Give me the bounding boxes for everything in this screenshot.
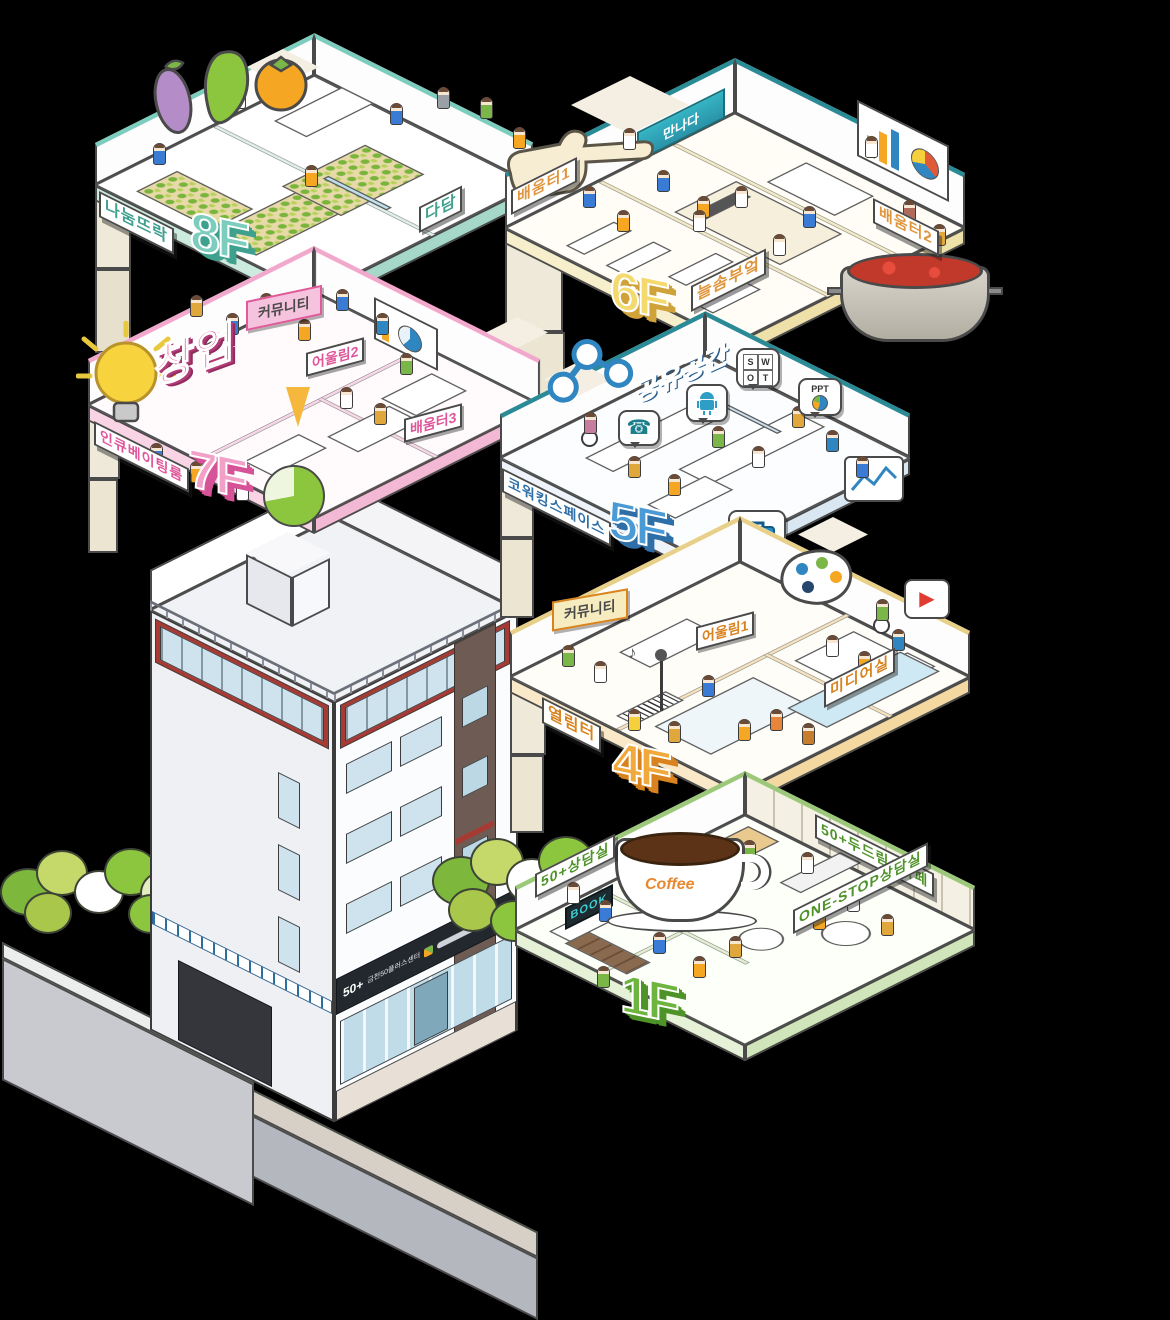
person xyxy=(729,936,742,958)
person xyxy=(480,97,493,119)
elevator-door xyxy=(500,538,534,618)
palette-icon xyxy=(778,547,856,607)
building-window xyxy=(346,881,392,934)
floor-number-5f: 5F xyxy=(608,492,665,558)
floor-7f: 커뮤니티 창업 인큐베이팅룸 어울림2 배움터3 7F xyxy=(88,405,120,553)
person xyxy=(826,430,839,452)
person xyxy=(336,289,349,311)
person xyxy=(628,456,641,478)
soup-pot-icon xyxy=(840,266,990,342)
bush xyxy=(24,892,72,934)
person xyxy=(801,852,814,874)
community-banner-text: 커뮤니티 xyxy=(564,597,616,622)
play-button-icon: ▶ xyxy=(904,579,950,619)
person xyxy=(653,932,666,954)
person xyxy=(668,474,681,496)
chart-pie xyxy=(398,321,422,357)
floor-number-1f: 1F xyxy=(620,966,677,1032)
person xyxy=(803,206,816,228)
phone-icon: ☎ xyxy=(627,418,652,438)
person xyxy=(190,295,203,317)
pennant-icon xyxy=(286,387,310,427)
building-window xyxy=(400,716,442,767)
sign-logo: 50+ xyxy=(343,976,363,1000)
ppt-label: PPT xyxy=(811,384,829,394)
person xyxy=(583,186,596,208)
sign-logo-2-icon xyxy=(424,944,433,958)
parking-entrance xyxy=(178,960,272,1087)
pot-handle xyxy=(827,287,843,295)
pot-contents xyxy=(847,253,983,289)
community-banner-text: 커뮤니티 xyxy=(258,295,310,322)
person xyxy=(594,661,607,683)
person xyxy=(305,165,318,187)
person xyxy=(876,599,889,621)
person xyxy=(856,456,869,478)
android-bubble xyxy=(686,384,728,422)
person xyxy=(802,723,815,745)
person xyxy=(628,709,641,731)
floor-number-8f: 8F xyxy=(190,204,247,270)
phone-bubble: ☎ xyxy=(618,410,660,446)
building: 50+ 금천50플러스센터 xyxy=(150,490,520,1150)
ppt-bubble: PPT xyxy=(798,378,842,416)
coffee-text: Coffee xyxy=(645,876,695,894)
floor-number-6f: 6F xyxy=(610,262,667,328)
ppt-pie-icon xyxy=(812,395,828,411)
person xyxy=(773,234,786,256)
person xyxy=(597,966,610,988)
android-icon xyxy=(695,390,719,416)
person xyxy=(826,635,839,657)
chart-bar xyxy=(879,131,887,165)
line-chart-icon xyxy=(844,456,904,502)
person xyxy=(153,143,166,165)
person xyxy=(693,956,706,978)
person xyxy=(376,313,389,335)
person xyxy=(752,446,765,468)
swot-t: T xyxy=(758,370,773,386)
swot-o: O xyxy=(743,370,758,386)
practice-floor xyxy=(654,677,810,755)
person xyxy=(617,210,630,232)
person xyxy=(735,186,748,208)
building-window xyxy=(278,844,300,901)
person xyxy=(340,387,353,409)
pot-handle xyxy=(987,287,1003,295)
person xyxy=(623,128,636,150)
coffee-surface xyxy=(620,832,740,866)
person xyxy=(567,882,580,904)
swot-bubble: SWOT xyxy=(736,348,780,388)
person xyxy=(437,87,450,109)
scene: 50+ 금천50플러스센터 xyxy=(0,0,1170,1201)
person xyxy=(770,709,783,731)
floor-number-7f: 7F xyxy=(188,441,245,507)
person xyxy=(374,403,387,425)
microphone-head xyxy=(655,649,667,661)
microphone-icon xyxy=(660,661,663,711)
person xyxy=(712,426,725,448)
person xyxy=(668,721,681,743)
person xyxy=(738,719,751,741)
music-note-icon: ♪ xyxy=(628,643,637,663)
floor-number-4f: 4F xyxy=(612,733,669,799)
coffee-cup-icon: Coffee xyxy=(607,830,763,934)
elevator-door xyxy=(510,755,544,833)
building-window xyxy=(278,916,300,973)
person xyxy=(693,210,706,232)
person xyxy=(881,914,894,936)
person xyxy=(562,645,575,667)
building-window xyxy=(346,811,392,864)
building-window xyxy=(278,772,300,829)
person xyxy=(584,412,597,434)
sign-name: 금천50플러스센터 xyxy=(367,950,420,986)
elevator-door xyxy=(88,479,118,553)
person xyxy=(298,319,311,341)
swot-s: S xyxy=(743,354,758,370)
chart-pie xyxy=(911,143,939,185)
building-window xyxy=(400,786,442,837)
swot-w: W xyxy=(758,354,773,370)
floor-4f: 커뮤니티 ▶ ♪ ♪ 열림터 미디어실 어울림1 4F xyxy=(510,677,546,833)
chart-bar xyxy=(891,129,899,171)
person xyxy=(702,675,715,697)
person xyxy=(657,170,670,192)
play-triangle: ▶ xyxy=(919,589,934,609)
person xyxy=(865,136,878,158)
vegetable-icons xyxy=(143,39,313,144)
pie-chart-icon xyxy=(263,465,325,527)
swot-grid: SWOT xyxy=(743,354,773,382)
person xyxy=(390,103,403,125)
building-window xyxy=(346,741,392,794)
floor-5f: 공유공간 ☎ SWOT PPT 코워킹스페이스 5F xyxy=(500,458,534,618)
person xyxy=(400,353,413,375)
